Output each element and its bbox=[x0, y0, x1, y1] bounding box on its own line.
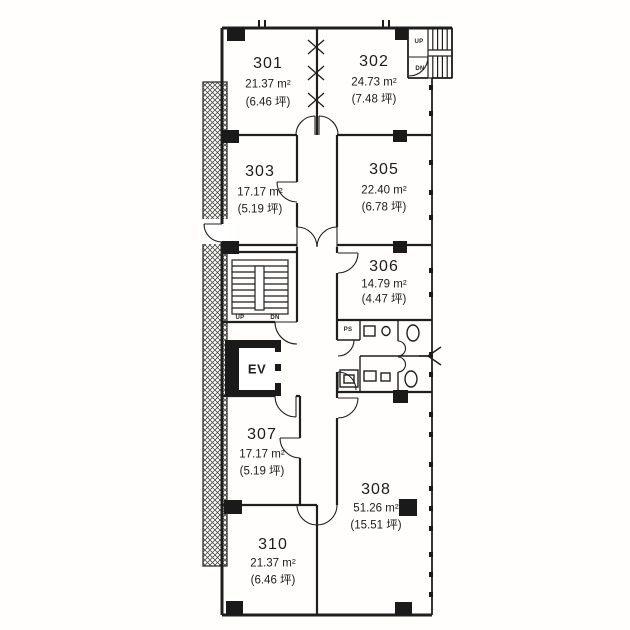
room-301-tsubo: (6.46 坪) bbox=[246, 97, 291, 109]
room-307-number: 307 bbox=[247, 427, 277, 443]
main-stair-down-label: DN bbox=[270, 315, 279, 321]
floor-plan-drawing bbox=[0, 0, 630, 630]
room-306-area: 14.79 m² bbox=[361, 279, 406, 291]
room-308-number: 308 bbox=[361, 482, 391, 498]
room-307-area: 17.17 m² bbox=[239, 449, 284, 461]
room-310-number: 310 bbox=[258, 537, 288, 553]
upper-stair-down-label: DN bbox=[415, 66, 424, 72]
main-stairs-icon bbox=[232, 260, 288, 314]
room-301-number: 301 bbox=[253, 56, 283, 72]
room-308-tsubo: (15.51 坪) bbox=[350, 520, 401, 532]
room-310-tsubo: (6.46 坪) bbox=[251, 575, 296, 587]
room-301-area: 21.37 m² bbox=[245, 79, 290, 91]
adjacent-building-hatch bbox=[201, 82, 228, 566]
room-303-number: 303 bbox=[245, 164, 275, 180]
room-308-area: 51.26 m² bbox=[353, 503, 398, 515]
room-302-tsubo: (7.48 坪) bbox=[352, 94, 397, 106]
room-305-tsubo: (6.78 坪) bbox=[362, 202, 407, 214]
floor-plan: 301 21.37 m² (6.46 坪) 302 24.73 m² (7.48… bbox=[0, 0, 630, 630]
room-307-tsubo: (5.19 坪) bbox=[240, 466, 285, 478]
elevator-label: EV bbox=[248, 363, 266, 376]
room-305-number: 305 bbox=[369, 162, 399, 178]
room-303-tsubo: (5.19 坪) bbox=[238, 204, 283, 216]
room-310-area: 21.37 m² bbox=[250, 558, 295, 570]
room-306-number: 306 bbox=[369, 259, 399, 275]
room-302-area: 24.73 m² bbox=[351, 77, 396, 89]
upper-stair-up-label: UP bbox=[415, 39, 424, 45]
pipe-shaft-label: PS bbox=[344, 327, 353, 333]
main-stair-up-label: UP bbox=[236, 315, 245, 321]
room-306-tsubo: (4.47 坪) bbox=[362, 294, 407, 306]
room-303-area: 17.17 m² bbox=[237, 187, 282, 199]
room-305-area: 22.40 m² bbox=[361, 185, 406, 197]
room-302-number: 302 bbox=[359, 54, 389, 70]
